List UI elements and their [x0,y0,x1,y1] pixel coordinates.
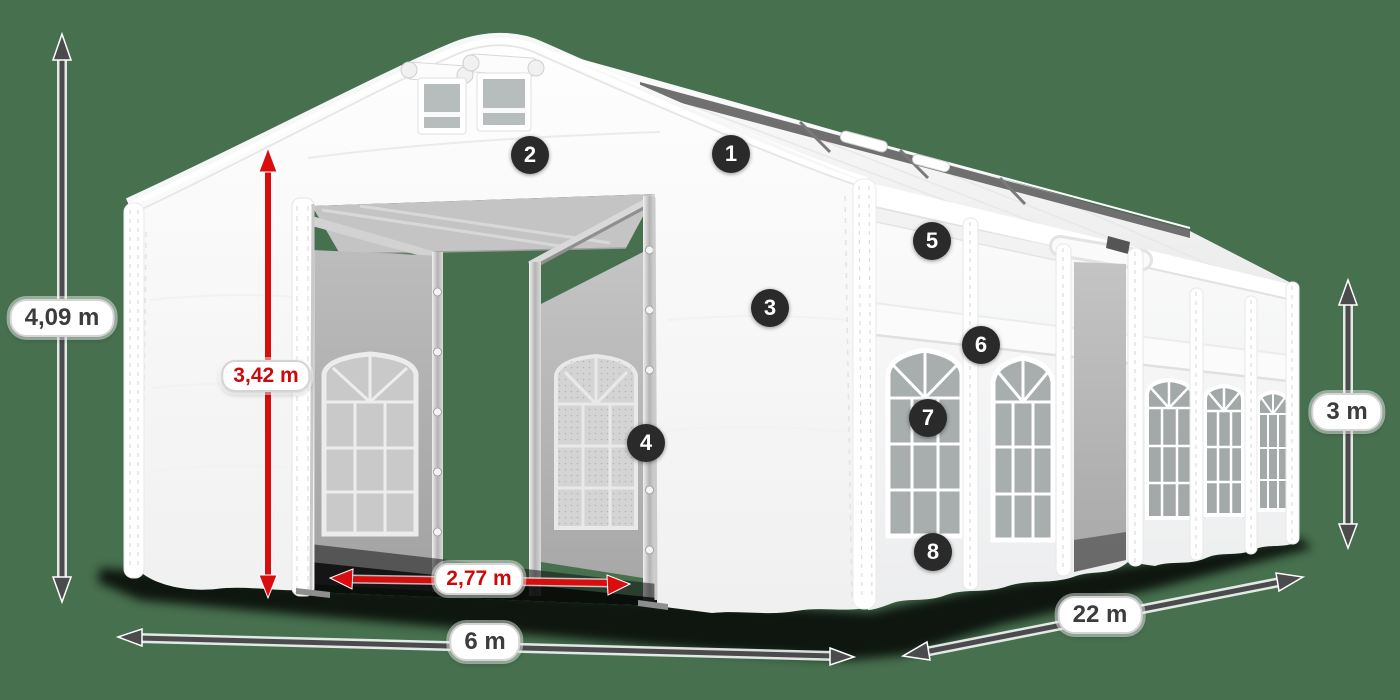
feature-marker-5[interactable]: 5 [913,222,951,260]
feature-marker-7[interactable]: 7 [909,399,947,437]
dimension-label-side-height: 3 m [1311,393,1382,431]
tent-dimensions-diagram: 1 2 3 4 5 6 7 8 4,09 m 3,42 m 2,77 m 6 m… [0,0,1400,700]
entrance-interior [300,180,670,620]
dimension-label-width: 6 m [449,623,520,661]
feature-marker-2[interactable]: 2 [511,136,549,174]
dimension-label-length: 22 m [1058,596,1143,634]
dimension-label-entrance-width: 2,77 m [434,563,523,595]
feature-marker-8[interactable]: 8 [914,533,952,571]
feature-marker-1[interactable]: 1 [712,135,750,173]
feature-marker-3[interactable]: 3 [751,289,789,327]
dimension-label-total-height: 4,09 m [10,299,115,337]
feature-marker-4[interactable]: 4 [627,424,665,462]
feature-marker-6[interactable]: 6 [962,326,1000,364]
dimension-label-entrance-height: 3,42 m [221,360,310,392]
tent-illustration [0,0,1400,700]
